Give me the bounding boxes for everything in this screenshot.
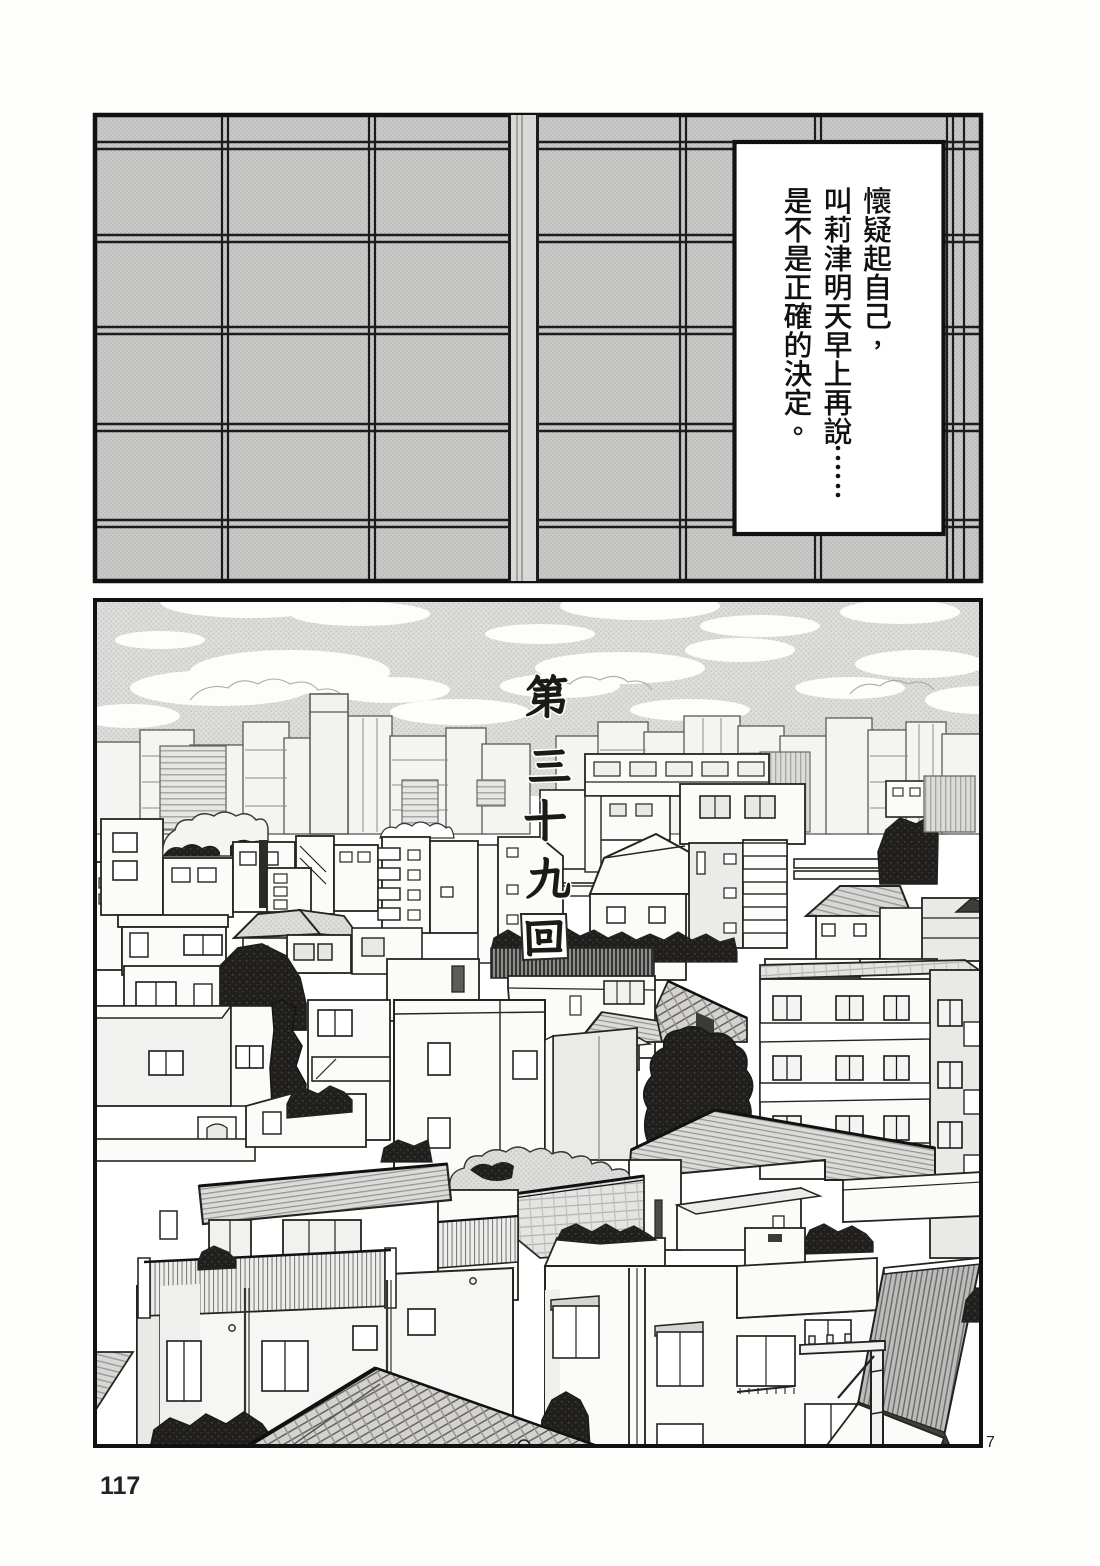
svg-text:117: 117: [100, 1472, 140, 1500]
svg-text:7: 7: [986, 1434, 995, 1451]
